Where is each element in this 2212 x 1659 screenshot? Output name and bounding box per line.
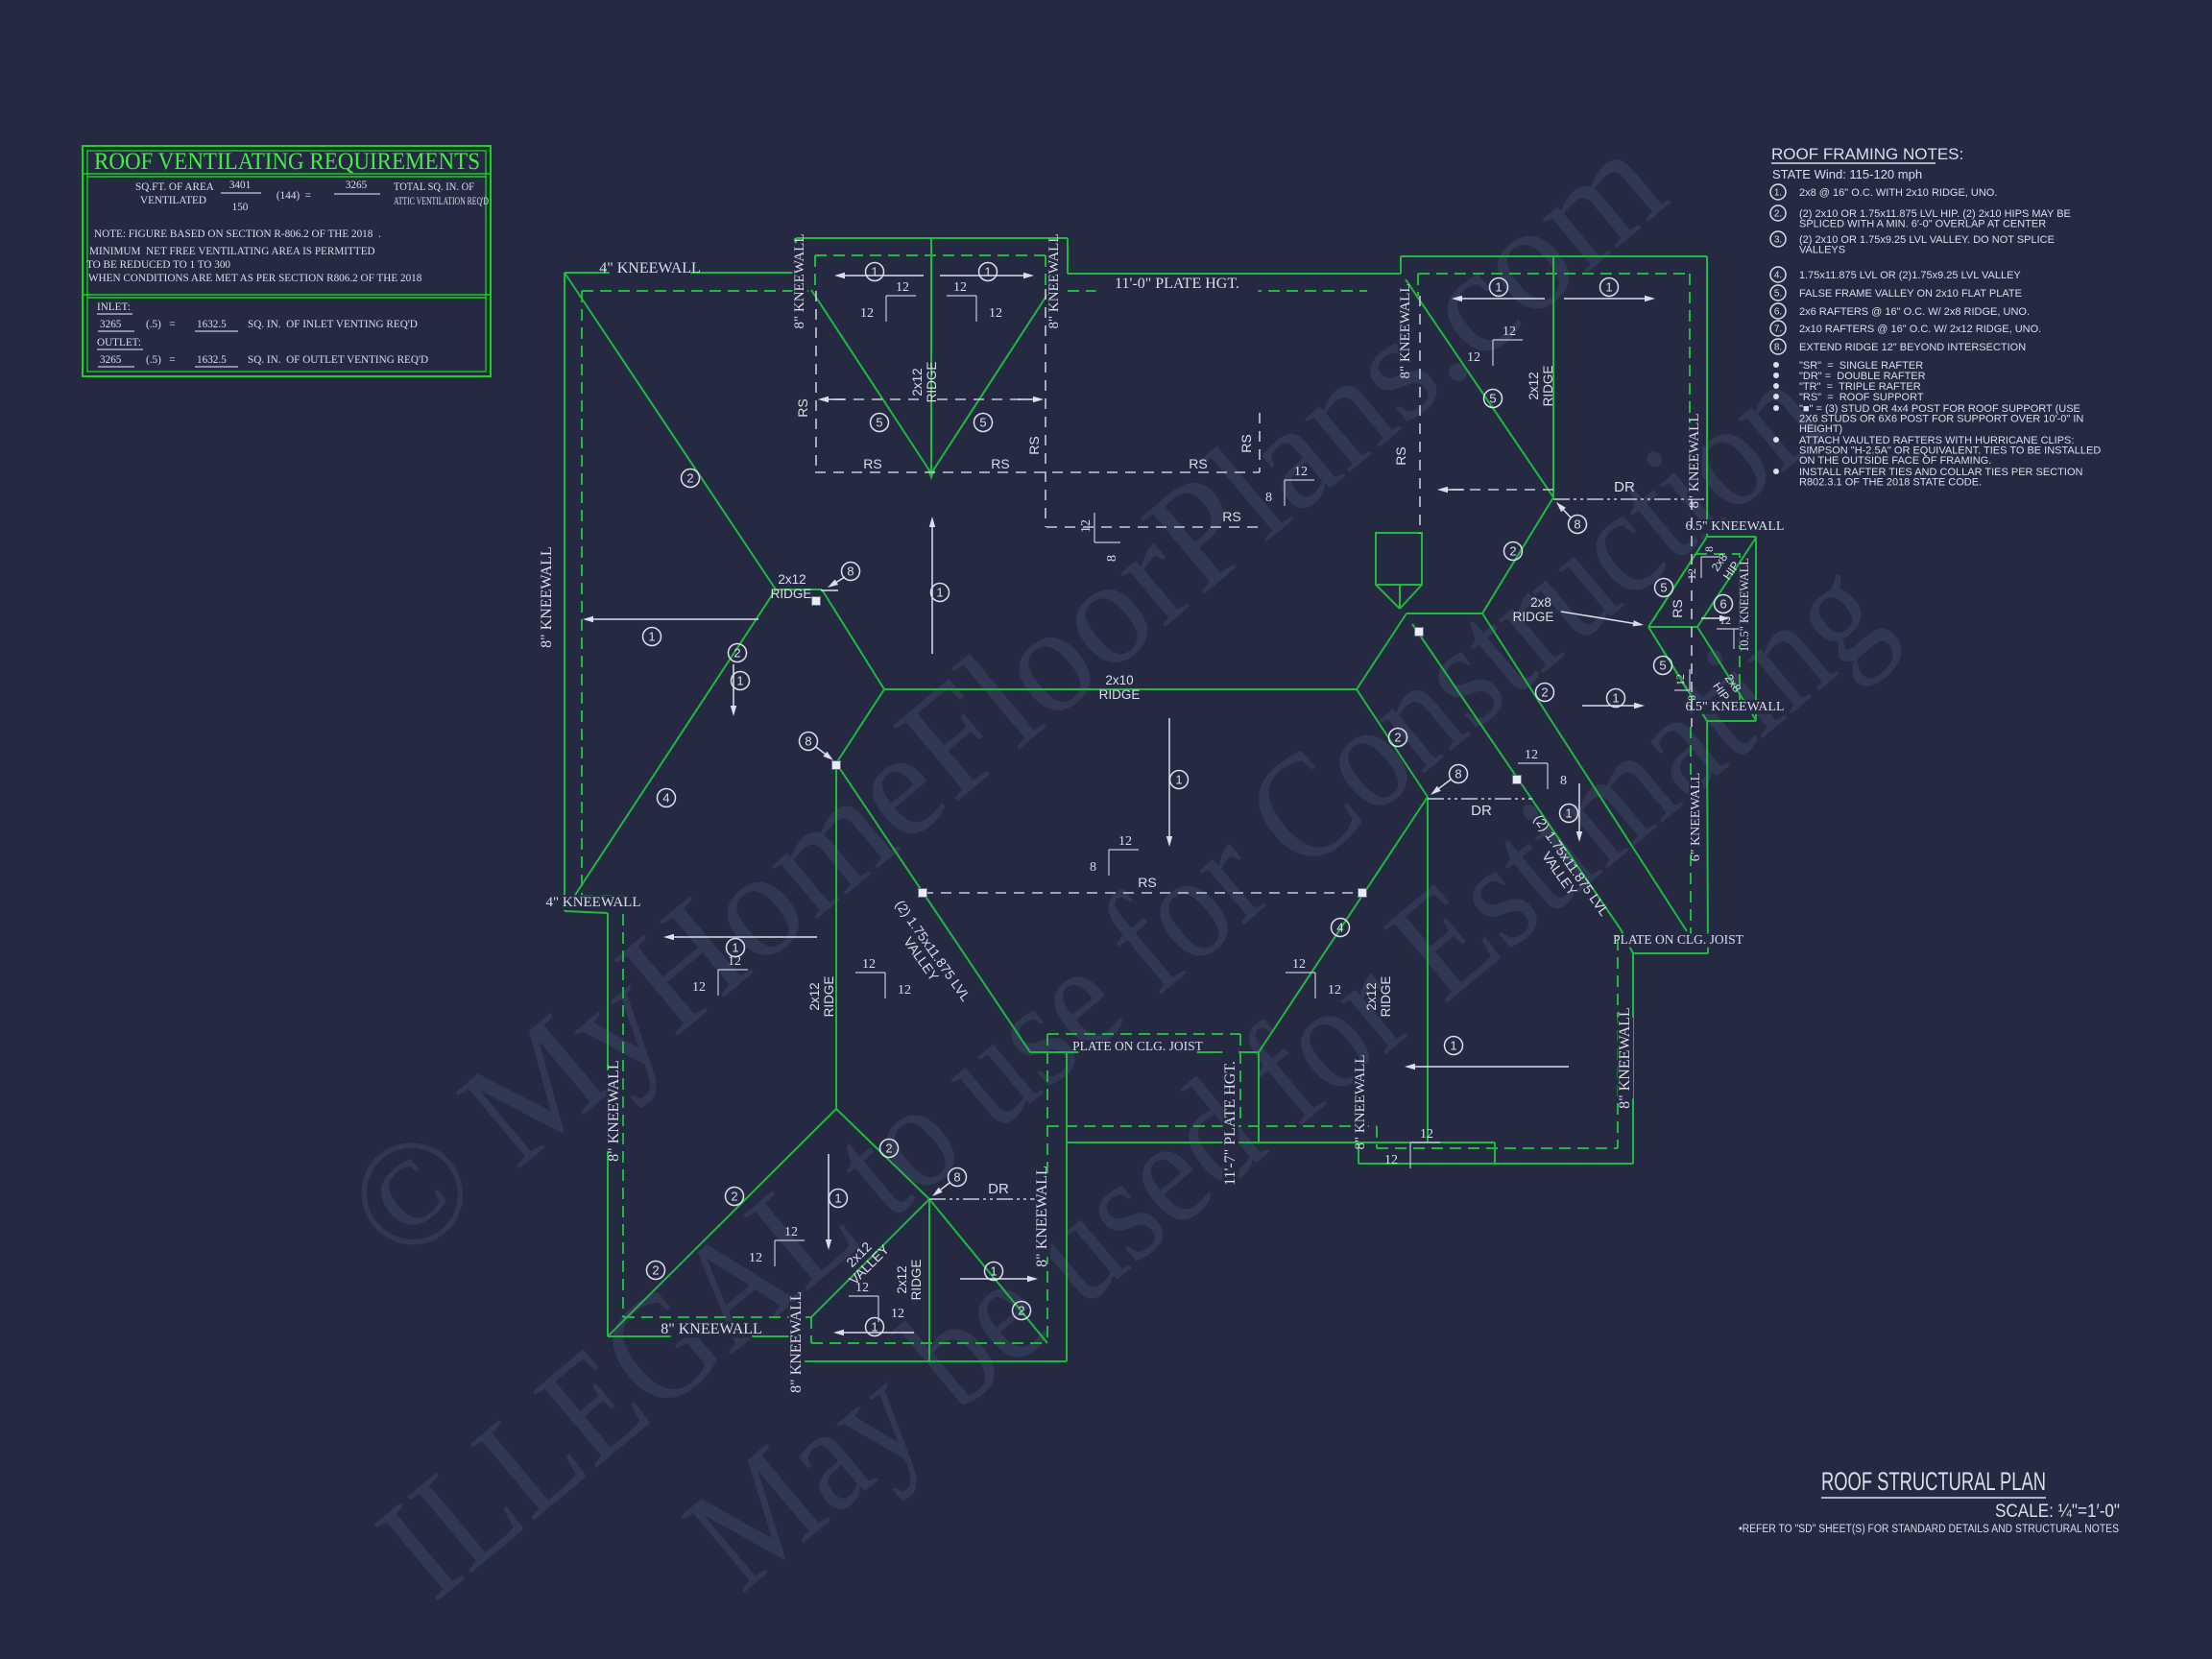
svg-text:RS: RS: [991, 456, 1009, 471]
svg-text:1.: 1.: [1774, 188, 1782, 199]
svg-text:"RS" = ROOF SUPPORT: "RS" = ROOF SUPPORT: [1799, 392, 1924, 403]
svg-text:RS: RS: [1393, 446, 1408, 465]
svg-text:ROOF VENTILATING REQUIREMENTS: ROOF VENTILATING REQUIREMENTS: [94, 149, 480, 175]
svg-text:PLATE ON CLG. JOIST: PLATE ON CLG. JOIST: [1613, 932, 1744, 947]
svg-text:3265: 3265: [100, 354, 122, 366]
svg-text:VENTILATED: VENTILATED: [140, 195, 206, 206]
svg-text:RS: RS: [1026, 436, 1042, 454]
svg-text:2x12: 2x12: [778, 572, 805, 587]
svg-text:8.: 8.: [1774, 343, 1782, 353]
svg-text:8: 8: [1265, 491, 1272, 505]
svg-text:RIDGE: RIDGE: [1379, 976, 1393, 1018]
svg-text:5: 5: [1659, 659, 1666, 673]
svg-text:3.: 3.: [1774, 235, 1782, 246]
svg-text:2: 2: [1541, 685, 1548, 700]
svg-text:1: 1: [871, 1320, 878, 1334]
svg-text:12: 12: [1719, 613, 1731, 627]
svg-text:1632.5: 1632.5: [197, 319, 227, 330]
svg-text:8" KNEEWALL: 8" KNEEWALL: [792, 233, 807, 328]
svg-text:R802.3.1 OF THE 2018 STATE COD: R802.3.1 OF THE 2018 STATE CODE.: [1799, 477, 1982, 489]
svg-text:8: 8: [1455, 767, 1461, 781]
svg-text:12: 12: [1503, 325, 1516, 339]
svg-text:12: 12: [1294, 465, 1308, 479]
svg-text:12: 12: [989, 306, 1002, 321]
svg-text:8" KNEEWALL: 8" KNEEWALL: [539, 546, 555, 648]
svg-text:INLET:: INLET:: [97, 301, 131, 313]
svg-text:6.5" KNEEWALL: 6.5" KNEEWALL: [1686, 700, 1785, 714]
svg-text:12: 12: [749, 1251, 762, 1265]
svg-text:EXTEND RIDGE 12" BEYOND INTERS: EXTEND RIDGE 12" BEYOND INTERSECTION: [1799, 342, 2026, 353]
svg-text:1: 1: [1175, 773, 1182, 787]
svg-text:RIDGE: RIDGE: [771, 587, 812, 601]
svg-text:ATTIC VENTILATION REQ'D: ATTIC VENTILATION REQ'D: [394, 196, 489, 207]
svg-text:2x12: 2x12: [910, 368, 925, 396]
svg-text:MINIMUM NET FREE VENTILATING: MINIMUM NET FREE VENTILATING AREA IS PER…: [89, 246, 375, 257]
svg-text:12: 12: [784, 1225, 798, 1239]
svg-text:8" KNEEWALL: 8" KNEEWALL: [1034, 1166, 1050, 1267]
svg-text:4.: 4.: [1774, 271, 1782, 281]
svg-text:•REFER TO "SD" SHEET(S) FOR ST: •REFER TO "SD" SHEET(S) FOR STANDARD DET…: [1739, 1524, 2119, 1535]
svg-text:5.: 5.: [1774, 289, 1782, 300]
svg-text:FALSE FRAME VALLEY ON 2x10 FLA: FALSE FRAME VALLEY ON 2x10 FLAT PLATE: [1799, 288, 2022, 300]
svg-text:6" KNEEWALL: 6" KNEEWALL: [1689, 773, 1703, 861]
svg-text:12: 12: [1384, 1153, 1398, 1167]
svg-text:RIDGE: RIDGE: [1541, 366, 1555, 407]
svg-text:1632.5: 1632.5: [197, 354, 227, 366]
svg-text:2: 2: [1394, 731, 1401, 745]
svg-text:12: 12: [953, 280, 967, 295]
svg-text:OUTLET:: OUTLET:: [97, 337, 141, 349]
svg-text:12: 12: [1685, 568, 1698, 580]
svg-text:VALLEYS: VALLEYS: [1799, 245, 1845, 256]
svg-text:8" KNEEWALL: 8" KNEEWALL: [606, 1060, 622, 1162]
svg-text:2x8: 2x8: [1530, 595, 1551, 610]
svg-text:RS: RS: [863, 456, 881, 471]
svg-text:1: 1: [732, 941, 738, 955]
svg-text:12: 12: [1420, 1127, 1433, 1142]
svg-text:8" KNEEWALL: 8" KNEEWALL: [1398, 283, 1413, 378]
svg-text:12: 12: [891, 1307, 904, 1321]
svg-text:RIDGE: RIDGE: [822, 976, 836, 1018]
svg-text:150: 150: [232, 202, 249, 213]
svg-text:2: 2: [733, 646, 740, 661]
svg-text:DR: DR: [1614, 479, 1635, 495]
svg-text:SQ. IN. OF INLET VENTING REQ': SQ. IN. OF INLET VENTING REQ'D: [248, 319, 418, 330]
svg-text:DR: DR: [1471, 803, 1492, 819]
svg-text:12: 12: [860, 306, 874, 321]
svg-text:12: 12: [898, 983, 911, 998]
svg-text:10.5" KNEEWALL: 10.5" KNEEWALL: [1738, 558, 1751, 652]
svg-text:6: 6: [1719, 597, 1726, 612]
svg-text:1: 1: [1450, 1039, 1456, 1053]
svg-text:2x12: 2x12: [1364, 982, 1379, 1010]
svg-text:12: 12: [728, 954, 741, 969]
svg-text:2: 2: [731, 1190, 737, 1204]
svg-text:SQ. IN. OF OUTLET VENTING REQ: SQ. IN. OF OUTLET VENTING REQ'D: [248, 354, 428, 366]
svg-text:1: 1: [648, 630, 655, 644]
svg-text:SCALE: ¼"=1′-0": SCALE: ¼"=1′-0": [1995, 1502, 2120, 1522]
svg-text:4: 4: [662, 791, 669, 805]
svg-text:8" KNEEWALL: 8" KNEEWALL: [661, 1321, 762, 1337]
svg-text:RS: RS: [1222, 509, 1240, 524]
svg-text:11'-0" PLATE HGT.: 11'-0" PLATE HGT.: [1115, 276, 1239, 292]
svg-text:8: 8: [1560, 774, 1567, 788]
svg-text:4" KNEEWALL: 4" KNEEWALL: [545, 895, 640, 910]
svg-text:(.5) =: (.5) =: [146, 319, 176, 330]
svg-text:8: 8: [847, 565, 854, 579]
svg-text:SQ.FT. OF AREA: SQ.FT. OF AREA: [135, 181, 214, 193]
svg-text:RS: RS: [1138, 875, 1156, 890]
svg-text:RIDGE: RIDGE: [925, 362, 939, 403]
svg-text:8" KNEEWALL: 8" KNEEWALL: [1046, 233, 1062, 328]
svg-text:1: 1: [936, 586, 943, 600]
svg-text:2x10 RAFTERS @ 16" O.C. W/ 2x1: 2x10 RAFTERS @ 16" O.C. W/ 2x12 RIDGE, U…: [1799, 324, 2041, 335]
svg-text:12: 12: [862, 957, 876, 972]
svg-text:NOTE: FIGURE BASED ON SECTION: NOTE: FIGURE BASED ON SECTION R-806.2 OF…: [94, 228, 381, 240]
svg-text:6.5" KNEEWALL: 6.5" KNEEWALL: [1686, 519, 1785, 534]
svg-text:1: 1: [990, 1264, 997, 1279]
svg-text:TOTAL SQ. IN. OF: TOTAL SQ. IN. OF: [394, 181, 474, 193]
svg-text:12: 12: [692, 980, 706, 995]
svg-text:RS: RS: [1670, 599, 1685, 617]
svg-text:1: 1: [1495, 280, 1502, 295]
svg-text:4" KNEEWALL: 4" KNEEWALL: [599, 260, 701, 276]
svg-text:(144) =: (144) =: [276, 190, 311, 202]
svg-text:3401: 3401: [229, 180, 251, 191]
svg-text:12: 12: [1525, 748, 1538, 762]
svg-text:TO BE REDUCED TO 1 TO 300: TO BE REDUCED TO 1 TO 300: [86, 259, 230, 271]
svg-text:2: 2: [652, 1263, 659, 1278]
svg-text:1: 1: [984, 265, 991, 279]
svg-text:RIDGE: RIDGE: [1513, 610, 1554, 624]
svg-text:ROOF STRUCTURAL PLAN: ROOF STRUCTURAL PLAN: [1821, 1467, 2046, 1496]
svg-text:1: 1: [736, 674, 743, 688]
svg-text:3265: 3265: [100, 319, 122, 330]
svg-text:8" KNEEWALL: 8" KNEEWALL: [1617, 1007, 1633, 1109]
svg-text:2: 2: [1509, 544, 1516, 559]
svg-text:8: 8: [1090, 860, 1096, 875]
svg-text:11'-7" PLATE HGT.: 11'-7" PLATE HGT.: [1222, 1061, 1238, 1186]
svg-text:8: 8: [953, 1170, 960, 1185]
svg-text:7.: 7.: [1774, 325, 1782, 335]
svg-text:1: 1: [1612, 691, 1619, 706]
svg-text:2x6 RAFTERS @ 16" O.C. W/ 2x8: 2x6 RAFTERS @ 16" O.C. W/ 2x8 RIDGE, UNO…: [1799, 306, 2030, 318]
svg-text:2x12: 2x12: [895, 1265, 909, 1293]
svg-text:6.: 6.: [1774, 307, 1782, 318]
svg-text:RIDGE: RIDGE: [909, 1260, 924, 1301]
svg-text:12: 12: [1292, 957, 1306, 972]
svg-text:2x10: 2x10: [1105, 673, 1133, 687]
svg-text:8: 8: [805, 734, 811, 749]
svg-text:5: 5: [876, 416, 882, 430]
svg-text:DR: DR: [988, 1181, 1009, 1197]
svg-text:1: 1: [1565, 806, 1572, 821]
svg-text:PLATE ON CLG. JOIST: PLATE ON CLG. JOIST: [1072, 1039, 1204, 1053]
svg-text:8" KNEEWALL: 8" KNEEWALL: [1353, 1054, 1368, 1149]
svg-text:2: 2: [885, 1142, 892, 1156]
svg-text:RS: RS: [1238, 434, 1254, 452]
svg-text:ROOF FRAMING NOTES:: ROOF FRAMING NOTES:: [1771, 145, 1963, 163]
svg-text:1.75x11.875 LVL OR (2)1.75x9.2: 1.75x11.875 LVL OR (2)1.75x9.25 LVL VALL…: [1799, 270, 2021, 281]
svg-text:2x8 @ 16" O.C. WITH 2x10 RIDGE: 2x8 @ 16" O.C. WITH 2x10 RIDGE, UNO.: [1799, 187, 1997, 199]
svg-text:8" KNEEWALL: 8" KNEEWALL: [788, 1291, 805, 1393]
svg-text:4: 4: [1336, 921, 1343, 935]
svg-text:12: 12: [1467, 350, 1480, 365]
svg-text:2x12: 2x12: [807, 982, 822, 1010]
svg-text:2: 2: [686, 471, 693, 486]
svg-text:(.5) =: (.5) =: [146, 354, 176, 366]
svg-text:HEIGHT): HEIGHT): [1799, 423, 1842, 435]
svg-text:5: 5: [1489, 392, 1496, 406]
svg-text:12: 12: [896, 280, 909, 295]
svg-text:STATE Wind: 115-120 mph: STATE Wind: 115-120 mph: [1772, 167, 1922, 181]
svg-text:3265: 3265: [346, 180, 368, 191]
svg-text:5: 5: [1660, 581, 1667, 595]
svg-text:RS: RS: [795, 398, 810, 417]
svg-text:RS: RS: [1189, 456, 1207, 471]
svg-text:8: 8: [1105, 555, 1119, 562]
svg-text:2: 2: [1018, 1304, 1024, 1318]
svg-text:12: 12: [1118, 834, 1132, 849]
svg-text:1: 1: [871, 265, 878, 279]
svg-text:2x12: 2x12: [1527, 372, 1541, 399]
svg-text:12: 12: [1673, 674, 1687, 685]
svg-text:WHEN CONDITIONS ARE MET AS PER: WHEN CONDITIONS ARE MET AS PER SECTION R…: [88, 273, 422, 284]
svg-text:1: 1: [1605, 280, 1612, 295]
svg-text:ON THE OUTSIDE FACE OF FRAMING: ON THE OUTSIDE FACE OF FRAMING.: [1799, 455, 1991, 467]
svg-text:1: 1: [834, 1191, 841, 1206]
svg-text:8: 8: [1702, 546, 1716, 552]
svg-text:5: 5: [979, 416, 986, 430]
svg-text:2.: 2.: [1774, 209, 1782, 220]
svg-text:12: 12: [1328, 983, 1341, 998]
svg-text:SPLICED WITH A MIN. 6′-0" OVER: SPLICED WITH A MIN. 6′-0" OVERLAP AT CEN…: [1799, 219, 2046, 230]
svg-text:RIDGE: RIDGE: [1099, 687, 1141, 702]
svg-text:8" KNEEWALL: 8" KNEEWALL: [1687, 413, 1702, 508]
svg-text:8: 8: [1574, 517, 1580, 532]
svg-text:12: 12: [1079, 519, 1094, 533]
